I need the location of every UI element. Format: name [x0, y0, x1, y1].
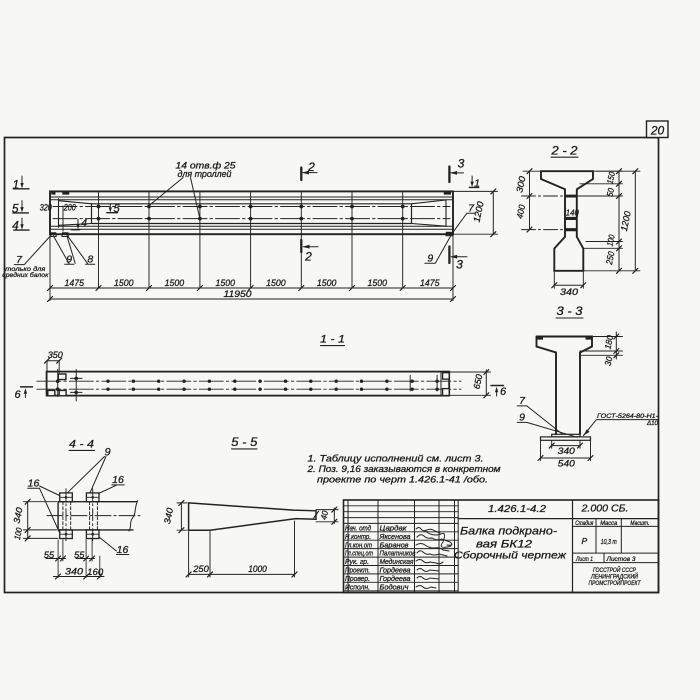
svg-text:4: 4 — [12, 219, 19, 233]
svg-text:Лист 1: Лист 1 — [575, 556, 593, 563]
svg-text:1500: 1500 — [368, 278, 388, 289]
svg-text:Яксенова: Яксенова — [378, 534, 410, 541]
svg-text:7: 7 — [519, 395, 526, 407]
svg-text:150: 150 — [605, 171, 617, 185]
svg-text:ЛЕНИНГРАДСКИЙ: ЛЕНИНГРАДСКИЙ — [590, 573, 639, 581]
svg-text:5: 5 — [12, 201, 19, 215]
svg-text:средних балок: средних балок — [2, 271, 49, 279]
svg-text:2: 2 — [307, 160, 315, 174]
svg-text:Н.контр.: Н.контр. — [345, 534, 371, 541]
svg-text:Исполн.: Исполн. — [345, 584, 370, 591]
svg-text:Мединская: Мединская — [380, 558, 414, 566]
svg-text:1: 1 — [474, 178, 480, 190]
svg-text:Балка подкрано-: Балка подкрано- — [460, 526, 557, 538]
svg-text:Масшт.: Масшт. — [630, 521, 649, 527]
svg-text:1500: 1500 — [215, 278, 235, 289]
svg-text:1500: 1500 — [114, 278, 134, 289]
svg-text:100: 100 — [12, 527, 24, 541]
svg-text:1500: 1500 — [317, 278, 337, 289]
svg-text:1: 1 — [12, 177, 19, 191]
svg-text:650: 650 — [472, 373, 485, 390]
svg-text:Провер.: Провер. — [345, 576, 370, 583]
svg-text:400: 400 — [515, 204, 528, 220]
svg-text:1500: 1500 — [266, 278, 286, 289]
svg-text:1500: 1500 — [165, 278, 185, 289]
svg-text:1.426.1-4.2: 1.426.1-4.2 — [488, 503, 546, 515]
svg-text:Листов 3: Листов 3 — [606, 556, 636, 563]
svg-text:340: 340 — [558, 446, 576, 456]
svg-text:7: 7 — [16, 254, 23, 266]
svg-text:1. Таблицу исполнений см. лис: 1. Таблицу исполнений см. лист 3. — [308, 454, 484, 464]
svg-text:2 - 2: 2 - 2 — [550, 145, 578, 157]
svg-text:340: 340 — [12, 507, 25, 525]
svg-text:Стадия: Стадия — [575, 521, 594, 527]
svg-text:320: 320 — [40, 203, 52, 213]
svg-text:Гордеева: Гордеева — [380, 575, 411, 583]
svg-text:6: 6 — [14, 389, 21, 401]
svg-text:300: 300 — [514, 175, 527, 193]
svg-text:Гл.кон.от: Гл.кон.от — [345, 542, 372, 549]
svg-text:540: 540 — [558, 459, 576, 469]
svg-text:1000: 1000 — [248, 563, 267, 574]
svg-text:350: 350 — [48, 350, 63, 360]
svg-text:340: 340 — [65, 566, 84, 577]
svg-text:3: 3 — [456, 258, 463, 272]
svg-text:9: 9 — [104, 446, 110, 458]
svg-text:ГОССТРОЙ СССР: ГОССТРОЙ СССР — [593, 566, 636, 574]
svg-text:5: 5 — [113, 203, 120, 215]
svg-text:Гордеева: Гордеева — [380, 567, 411, 575]
svg-text:6: 6 — [500, 386, 507, 398]
svg-text:3 - 3: 3 - 3 — [557, 306, 584, 318]
svg-text:ГОСТ-5264-80-Н1-: ГОСТ-5264-80-Н1- — [597, 413, 658, 420]
svg-text:Нач. отд: Нач. отд — [345, 524, 371, 532]
svg-text:250: 250 — [192, 563, 209, 574]
svg-text:20: 20 — [650, 124, 665, 138]
svg-text:11950: 11950 — [224, 289, 253, 300]
svg-text:100: 100 — [605, 234, 617, 247]
svg-text:Палатников: Палатников — [380, 551, 416, 558]
svg-text:1475: 1475 — [64, 278, 84, 289]
svg-text:Δ10: Δ10 — [646, 420, 659, 427]
svg-text:4 - 4: 4 - 4 — [69, 438, 94, 450]
svg-text:30: 30 — [603, 356, 615, 367]
svg-text:3: 3 — [458, 157, 465, 171]
svg-text:Цардак: Цардак — [380, 524, 408, 532]
svg-text:1 - 1: 1 - 1 — [320, 334, 345, 346]
svg-text:Рук. гр.: Рук. гр. — [345, 559, 369, 566]
svg-text:1475: 1475 — [420, 278, 440, 289]
svg-text:50: 50 — [604, 187, 616, 198]
svg-text:160: 160 — [87, 566, 104, 577]
svg-text:1200: 1200 — [619, 210, 633, 232]
svg-text:Баранов: Баранов — [380, 542, 409, 549]
svg-text:55: 55 — [74, 550, 85, 560]
svg-text:55: 55 — [44, 550, 55, 560]
svg-text:Р: Р — [581, 536, 587, 546]
svg-text:10,3 т: 10,3 т — [601, 539, 617, 546]
svg-text:9: 9 — [519, 412, 525, 424]
svg-text:Гл.спец.от: Гл.спец.от — [345, 551, 373, 558]
svg-text:5 - 5: 5 - 5 — [231, 437, 258, 449]
svg-text:180: 180 — [603, 334, 616, 350]
svg-text:2.000 СБ.: 2.000 СБ. — [580, 502, 628, 514]
svg-text:2: 2 — [304, 250, 312, 264]
svg-text:Сборочный чертеж: Сборочный чертеж — [454, 550, 567, 562]
svg-text:250: 250 — [604, 251, 617, 267]
svg-text:40: 40 — [318, 510, 330, 521]
svg-text:340: 340 — [560, 286, 579, 297]
svg-text:для троллей: для троллей — [178, 169, 232, 179]
svg-text:2. Поз. 9,16 заказываются в ко: 2. Поз. 9,16 заказываются в конкретном — [306, 464, 500, 474]
svg-text:200: 200 — [63, 203, 76, 213]
svg-text:4: 4 — [81, 218, 87, 230]
svg-text:ПРОМСТРОЙПРОЕКТ: ПРОМСТРОЙПРОЕКТ — [589, 579, 642, 587]
svg-text:Масса: Масса — [600, 521, 618, 527]
svg-text:Бодович: Бодович — [380, 583, 409, 591]
svg-text:340: 340 — [162, 507, 175, 525]
svg-text:проекте по черт 1.426.1-41 /об: проекте по черт 1.426.1-41 /обо. — [317, 474, 488, 484]
svg-text:Проект.: Проект. — [345, 568, 370, 575]
